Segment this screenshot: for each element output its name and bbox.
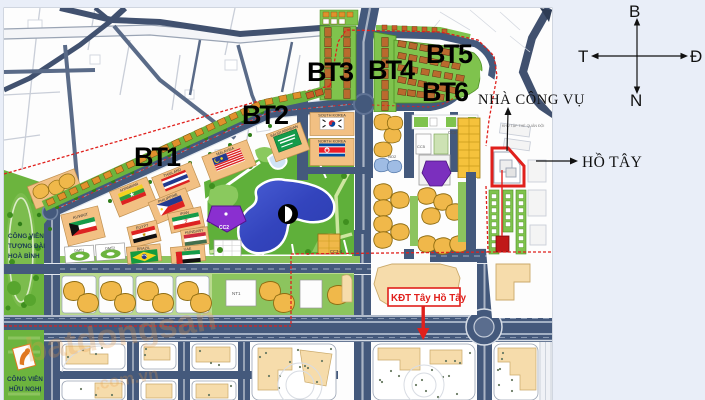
svg-text:BT5: BT5 <box>426 39 473 69</box>
svg-text:TƯỢNG ĐÀI: TƯỢNG ĐÀI <box>8 241 45 250</box>
svg-text:Đ: Đ <box>690 47 702 66</box>
svg-text:NT1: NT1 <box>232 291 241 296</box>
svg-text:BT3: BT3 <box>307 57 354 87</box>
svg-text:CC5: CC5 <box>417 144 426 149</box>
svg-text:KĐT Tây Hồ Tây: KĐT Tây Hồ Tây <box>391 293 467 304</box>
svg-text:DMT1: DMT1 <box>74 248 84 253</box>
svg-text:T: T <box>578 47 588 66</box>
svg-text:N: N <box>630 91 642 110</box>
svg-text:CÔNG VIÊN: CÔNG VIÊN <box>7 374 43 383</box>
svg-text:CÔNG VIÊN: CÔNG VIÊN <box>8 231 44 240</box>
svg-text:DMT2: DMT2 <box>105 246 115 251</box>
svg-text:CC2: CC2 <box>219 225 229 231</box>
svg-text:NORTH KOREA: NORTH KOREA <box>318 140 346 144</box>
svg-text:SOUTH KOREA: SOUTH KOREA <box>318 114 346 118</box>
svg-text:BT1: BT1 <box>134 142 181 172</box>
svg-text:NO2: NO2 <box>388 154 397 159</box>
svg-text:HỮU NGHỊ: HỮU NGHỊ <box>9 384 42 393</box>
svg-text:NHÀ CÔNG VỤ: NHÀ CÔNG VỤ <box>478 91 585 108</box>
svg-text:HỒ TÂY: HỒ TÂY <box>582 153 642 171</box>
svg-text:BT2: BT2 <box>242 100 288 130</box>
svg-text:BT4: BT4 <box>368 55 415 85</box>
svg-text:KHU TẬP THỂ QUÂN ĐỘI: KHU TẬP THỂ QUÂN ĐỘI <box>502 123 544 128</box>
svg-text:HOÀ BÌNH: HOÀ BÌNH <box>8 251 40 260</box>
svg-text:BT6: BT6 <box>422 77 469 107</box>
svg-text:B: B <box>629 2 640 21</box>
